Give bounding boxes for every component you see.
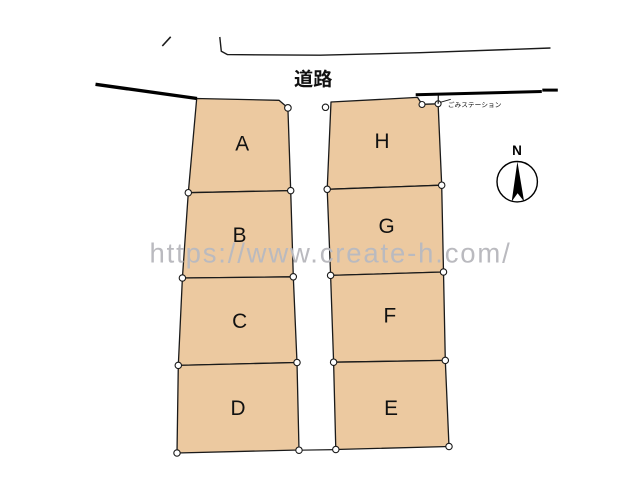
svg-text:F: F: [384, 304, 397, 327]
svg-text:G: G: [379, 215, 395, 238]
svg-text:N: N: [512, 143, 522, 158]
svg-text:C: C: [232, 310, 247, 333]
svg-text:E: E: [384, 397, 398, 420]
svg-text:A: A: [235, 133, 249, 156]
svg-text:H: H: [374, 130, 389, 153]
svg-text:D: D: [230, 397, 245, 420]
svg-text:https://www.create-h.com/: https://www.create-h.com/: [150, 238, 512, 269]
